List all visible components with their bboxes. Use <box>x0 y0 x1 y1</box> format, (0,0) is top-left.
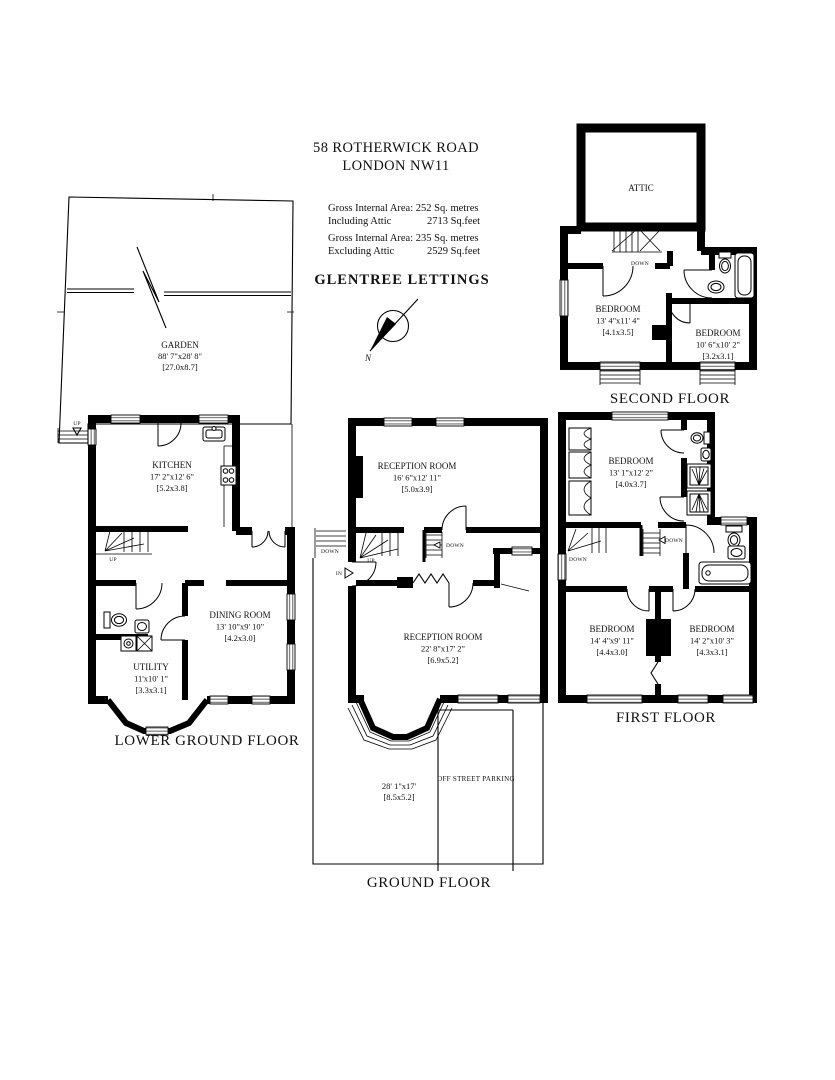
dining-rear-window <box>210 696 228 704</box>
kitchen-window <box>199 415 228 423</box>
bedroom-ff-right-name: BEDROOM <box>689 624 734 634</box>
reception2-door <box>449 583 473 607</box>
washing-machine-icon <box>121 636 136 651</box>
kitchen-name: KITCHEN <box>152 460 192 470</box>
utility-name: UTILITY <box>133 662 169 672</box>
bedroom-left-door <box>603 266 633 296</box>
dining-window <box>287 594 295 620</box>
parking-area: OFF STREET PARKING 28' 1"x17' [8.5x5.2] <box>313 558 543 871</box>
bedroom-ff-right-imperial: 14' 2"x10' 3" <box>690 636 734 646</box>
wc-basin-icon <box>135 620 149 633</box>
bedroom-right-window <box>678 695 708 703</box>
attic-name: ATTIC <box>628 183 654 193</box>
reception1-dims-metric: [5.0x3.9] <box>401 484 432 494</box>
compass-north-label: N <box>364 353 372 363</box>
bedroom-sf-right-name: BEDROOM <box>695 328 740 338</box>
bathroom-door <box>686 525 714 553</box>
annex-window <box>512 547 532 555</box>
bedroom-ff-left-imperial: 14' 4"x9' 11" <box>590 636 634 646</box>
kitchen-sink-icon <box>203 427 225 442</box>
kitchen-dims-metric: [5.2x3.8] <box>156 483 187 493</box>
area-excl-label: Excluding Attic <box>328 246 395 257</box>
first-floor-label: FIRST FLOOR <box>616 710 716 726</box>
lower-ground-floor-label: LOWER GROUND FLOOR <box>115 733 300 749</box>
kitchen-dims-imperial: 17' 2"x12' 6" <box>150 472 194 482</box>
first-floor-plan: DOWN DOWN <box>558 412 753 726</box>
dining-door <box>161 616 185 640</box>
garden-up-label: UP <box>73 421 80 427</box>
garden-dims-metric: [27.0x8.7] <box>162 362 198 372</box>
room-divider-zigzag <box>413 574 449 583</box>
floorplan-sheet: 58 ROTHERWICK ROAD LONDON NW11 Gross Int… <box>0 0 835 1080</box>
dining-rear-window <box>252 696 270 704</box>
bedroom-ff-top-name: BEDROOM <box>608 456 653 466</box>
landing-window <box>558 554 566 580</box>
reception1-window <box>384 418 412 426</box>
ff-down2-label: DOWN <box>665 538 683 544</box>
bedroom-sf-right-imperial: 10' 6"x10' 2" <box>696 340 740 350</box>
area-incl-line1: Gross Internal Area: 252 Sq. metres <box>328 203 478 214</box>
ground-floor-plan: IN UP DOWN DOWN OFF STREET PARKING 28' 1… <box>313 418 544 891</box>
utility-dims-metric: [3.3x3.1] <box>135 685 166 695</box>
entrance-in-label: IN <box>336 571 342 577</box>
gf-external-steps: DOWN <box>315 528 346 558</box>
title-block: 58 ROTHERWICK ROAD LONDON NW11 Gross Int… <box>313 140 490 288</box>
bedroom-ff-left-metric: [4.4x3.0] <box>596 647 627 657</box>
window-sill-steps <box>600 368 640 385</box>
chimney-breast <box>348 456 363 498</box>
chimney-breast <box>646 619 671 656</box>
area-excl-value: 2529 Sq.feet <box>427 246 480 257</box>
reception2-window <box>508 695 540 703</box>
lower-ground-floor-plan: UP <box>88 415 299 749</box>
sf-bathtub-icon <box>735 253 754 298</box>
utility-unit-icon <box>137 636 152 651</box>
reception2-window <box>458 695 498 703</box>
ground-floor-label: GROUND FLOOR <box>367 875 491 891</box>
floorplan-svg: 58 ROTHERWICK ROAD LONDON NW11 Gross Int… <box>0 0 835 1080</box>
sf-basin-icon <box>708 281 724 293</box>
reception1-dims-imperial: 16' 6"x12' 11" <box>393 473 441 483</box>
bedroom-ff-top-imperial: 13' 1"x12' 2" <box>609 468 653 478</box>
utility-bay-window-wall <box>108 700 207 731</box>
bedroom-right-window <box>700 362 735 370</box>
gf-down-label: DOWN <box>446 543 464 549</box>
reception1-door <box>442 506 466 530</box>
parking-dims-metric: [8.5x5.2] <box>383 792 414 802</box>
lgf-up-label: UP <box>109 557 116 563</box>
bedroom-sf-left-metric: [4.1x3.5] <box>602 327 633 337</box>
toilet-icon <box>104 612 127 628</box>
bedroom-right-window <box>723 695 753 703</box>
dining-dims-imperial: 13' 10"x9' 10" <box>216 622 264 632</box>
ff-down-label: DOWN <box>569 557 587 563</box>
parking-dims-imperial: 28' 1"x17' <box>382 781 417 791</box>
lgf-stairs-up: UP <box>105 531 148 563</box>
bedroom-left-window <box>587 695 642 703</box>
shower-icon <box>687 464 711 488</box>
reception1-window <box>436 418 464 426</box>
dining-window <box>287 644 295 670</box>
annex-walls <box>493 551 544 588</box>
second-floor-plan: DOWN ATTIC BEDROOM 13' 4"x11' 4" [4.1x3.… <box>560 128 754 407</box>
garden-steps <box>58 428 88 443</box>
dining-dims-metric: [4.2x3.0] <box>224 633 255 643</box>
reception2-dims-imperial: 22' 8"x17' 2" <box>421 644 465 654</box>
shower-icon <box>687 491 711 515</box>
window-sill-steps <box>700 368 735 385</box>
area-excl-line1: Gross Internal Area: 235 Sq. metres <box>328 233 478 244</box>
ensuite-basin-icon <box>701 448 711 461</box>
bedroom-ff-left-name: BEDROOM <box>589 624 634 634</box>
bathroom-basin-icon <box>728 546 745 559</box>
kitchen-garden-door <box>158 423 181 446</box>
wardrobe-icons <box>569 428 591 515</box>
sf-down-label: DOWN <box>631 261 649 267</box>
utility-dims-imperial: 11'x10' 1" <box>134 674 168 684</box>
kitchen-side-window <box>88 429 96 445</box>
bedroom-ff-top-metric: [4.0x3.7] <box>615 479 646 489</box>
stove-icon <box>221 466 236 485</box>
attic-walls <box>581 128 701 227</box>
gf-up-label: UP <box>367 558 374 564</box>
sf-stairs-down: DOWN <box>612 229 662 267</box>
bedroom-sf-right-metric: [3.2x3.1] <box>702 351 733 361</box>
kitchen-window <box>111 415 140 423</box>
chimney-breast <box>652 325 669 340</box>
ff-stairs-winder: DOWN <box>568 527 606 563</box>
north-compass-icon: N <box>364 299 418 363</box>
ensuite-door <box>661 430 684 453</box>
bedroom-top-door <box>660 497 684 521</box>
ff-stairs-straight: DOWN <box>643 529 683 556</box>
bedroom-ff-right-metric: [4.3x3.1] <box>696 647 727 657</box>
sf-toilet-icon <box>719 252 731 273</box>
bedroom-left-side-window <box>560 280 568 316</box>
gf-stairs-down: DOWN <box>426 532 464 558</box>
garden-name: GARDEN <box>161 340 199 350</box>
bathroom-door <box>684 270 712 298</box>
address-line2: LONDON NW11 <box>342 158 449 174</box>
bedroom-left-door <box>627 589 649 611</box>
bathroom-toilet-icon <box>726 526 742 547</box>
bathtub-icon <box>699 562 751 584</box>
ensuite-toilet-icon <box>691 432 710 444</box>
bathroom-window <box>721 517 747 525</box>
french-doors <box>252 531 285 547</box>
off-street-parking-label: OFF STREET PARKING <box>437 775 515 783</box>
bedroom-sf-left-name: BEDROOM <box>595 304 640 314</box>
address-line1: 58 ROTHERWICK ROAD <box>313 140 479 156</box>
garden-dims-imperial: 88' 7"x28' 8" <box>158 351 202 361</box>
dining-name: DINING ROOM <box>209 610 270 620</box>
down-arrow-icon <box>434 542 440 548</box>
gf-ext-down-label: DOWN <box>321 549 339 555</box>
bedroom-sf-left-imperial: 13' 4"x11' 4" <box>596 316 640 326</box>
wc-door <box>136 583 162 609</box>
second-floor-label: SECOND FLOOR <box>610 391 730 407</box>
reception-bay-wall <box>360 699 440 737</box>
garden-break-symbol <box>137 247 166 328</box>
bedroom-left-window <box>600 362 640 370</box>
area-incl-value: 2713 Sq.feet <box>427 216 480 227</box>
bedroom-right-door <box>673 589 695 611</box>
reception1-name: RECEPTION ROOM <box>378 461 457 471</box>
bedroom-top-window <box>612 412 668 420</box>
reception2-name: RECEPTION ROOM <box>404 632 483 642</box>
agency-name: GLENTREE LETTINGS <box>314 272 489 288</box>
bedroom-right-door <box>669 301 690 323</box>
reception2-dims-metric: [6.9x5.2] <box>427 655 458 665</box>
gf-stairs-up: UP <box>360 532 398 564</box>
area-incl-label: Including Attic <box>328 216 392 227</box>
parking-bay-outline <box>438 710 513 871</box>
